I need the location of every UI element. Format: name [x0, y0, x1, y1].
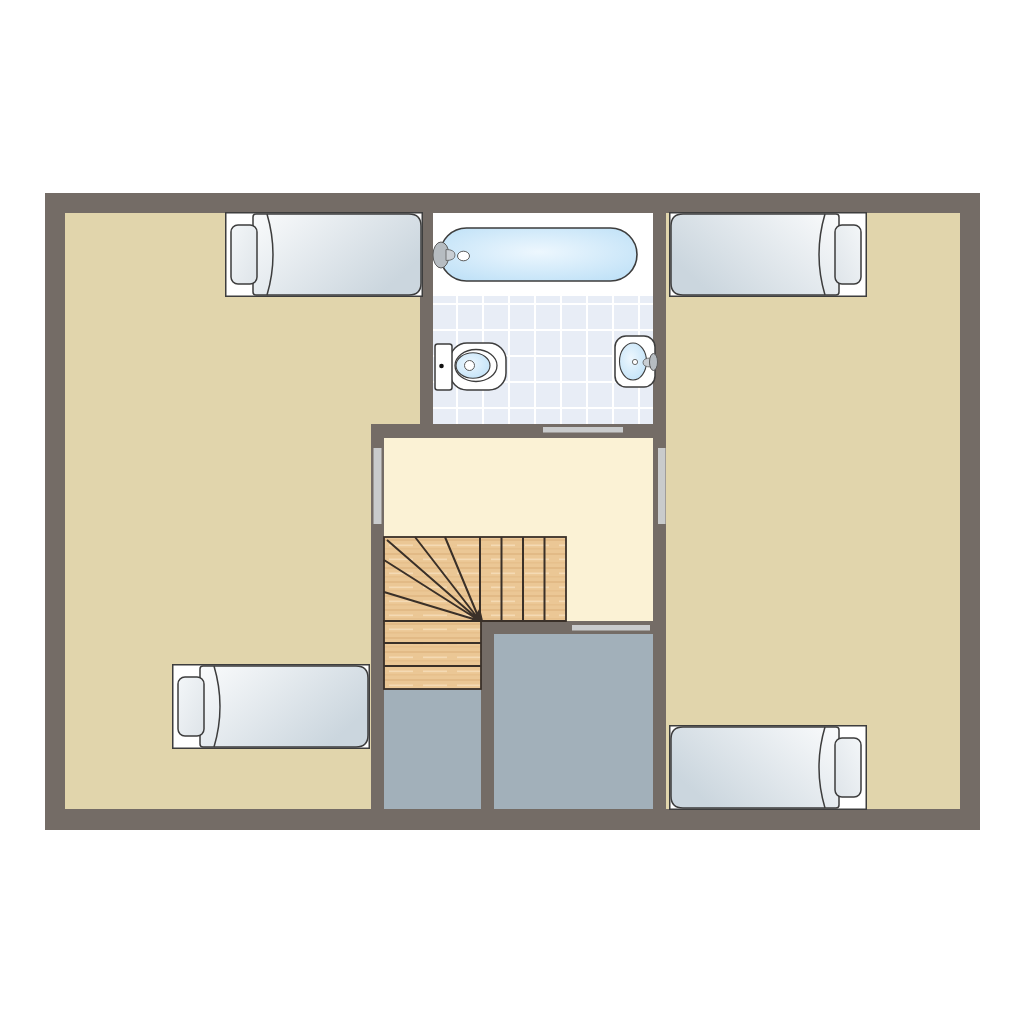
bathtub-drain-icon	[458, 251, 470, 261]
door-bedroom-left	[374, 448, 382, 524]
toilet-drain-icon	[465, 361, 475, 371]
washbasin	[615, 336, 658, 387]
bedroom-left-floor-lower	[65, 424, 371, 809]
floor-plan	[0, 0, 1024, 1024]
bed-bottom-right	[670, 726, 867, 810]
stair-lower-flight	[384, 621, 481, 689]
door-bedroom-right	[658, 448, 666, 524]
bathtub	[433, 228, 637, 281]
stair-bay-left-floor	[384, 689, 481, 809]
bed-bottom-left	[173, 665, 370, 749]
bedroom-right-floor	[666, 213, 960, 809]
toilet-flush-button	[439, 364, 444, 369]
washbasin-drain-icon	[632, 359, 637, 364]
toilet	[435, 343, 506, 390]
bed-top-right	[670, 213, 867, 297]
bathtub-spout-icon	[446, 250, 455, 261]
door-bathroom	[543, 427, 623, 433]
door-lower-bay	[572, 625, 650, 631]
washbasin-faucet-icon	[650, 354, 658, 371]
floor-plan-canvas	[0, 0, 1024, 1024]
bed-top-left	[226, 213, 423, 297]
stair-bay-right-floor	[494, 634, 653, 809]
